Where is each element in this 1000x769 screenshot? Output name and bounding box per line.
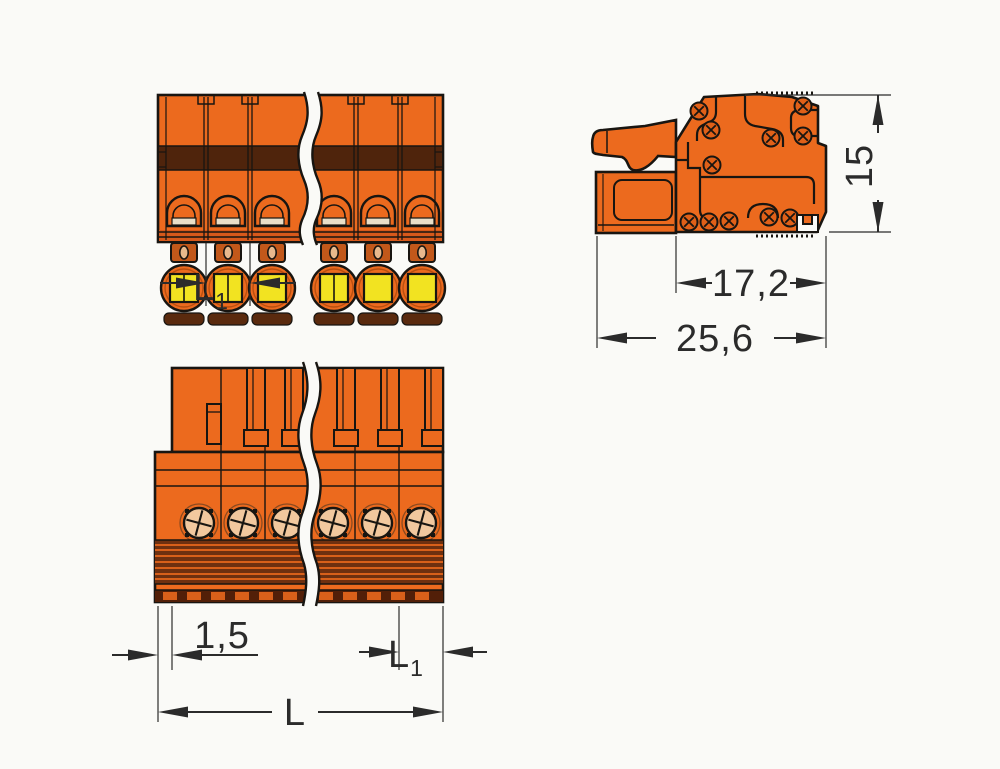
side-keying-notch	[797, 215, 818, 232]
bottom-view	[155, 362, 443, 606]
dim-bottom-length-label: L	[284, 692, 306, 734]
hole-6	[402, 504, 440, 542]
bottom-tooth-strip	[155, 590, 443, 602]
hole-1	[180, 504, 218, 542]
side-view	[592, 93, 826, 236]
dim-side-total-depth-label: 25,6	[676, 318, 754, 360]
pole-6	[399, 196, 445, 325]
dim-bottom-offset-label: 1,5	[194, 615, 250, 657]
hole-5	[358, 504, 396, 542]
dim-bottom-offset-1-5: 1,5	[112, 606, 258, 722]
pole-5	[355, 196, 401, 325]
connector-drawing-svg: L1 15 17,2 25,6	[0, 0, 1000, 769]
dim-bottom-pitch-l1: L1	[359, 606, 487, 722]
dim-bottom-pitch-label: L1	[388, 634, 424, 681]
technical-drawing-canvas: L1 15 17,2 25,6	[0, 0, 1000, 769]
dim-side-depth-label: 17,2	[712, 263, 790, 305]
hole-4	[314, 504, 352, 542]
side-latch-lever	[592, 120, 676, 170]
side-plug-shroud	[596, 172, 676, 233]
dim-side-height-label: 15	[839, 144, 881, 188]
dim-bottom-length-l: L	[158, 692, 443, 734]
pole-3	[249, 196, 295, 325]
hole-2	[224, 504, 262, 542]
